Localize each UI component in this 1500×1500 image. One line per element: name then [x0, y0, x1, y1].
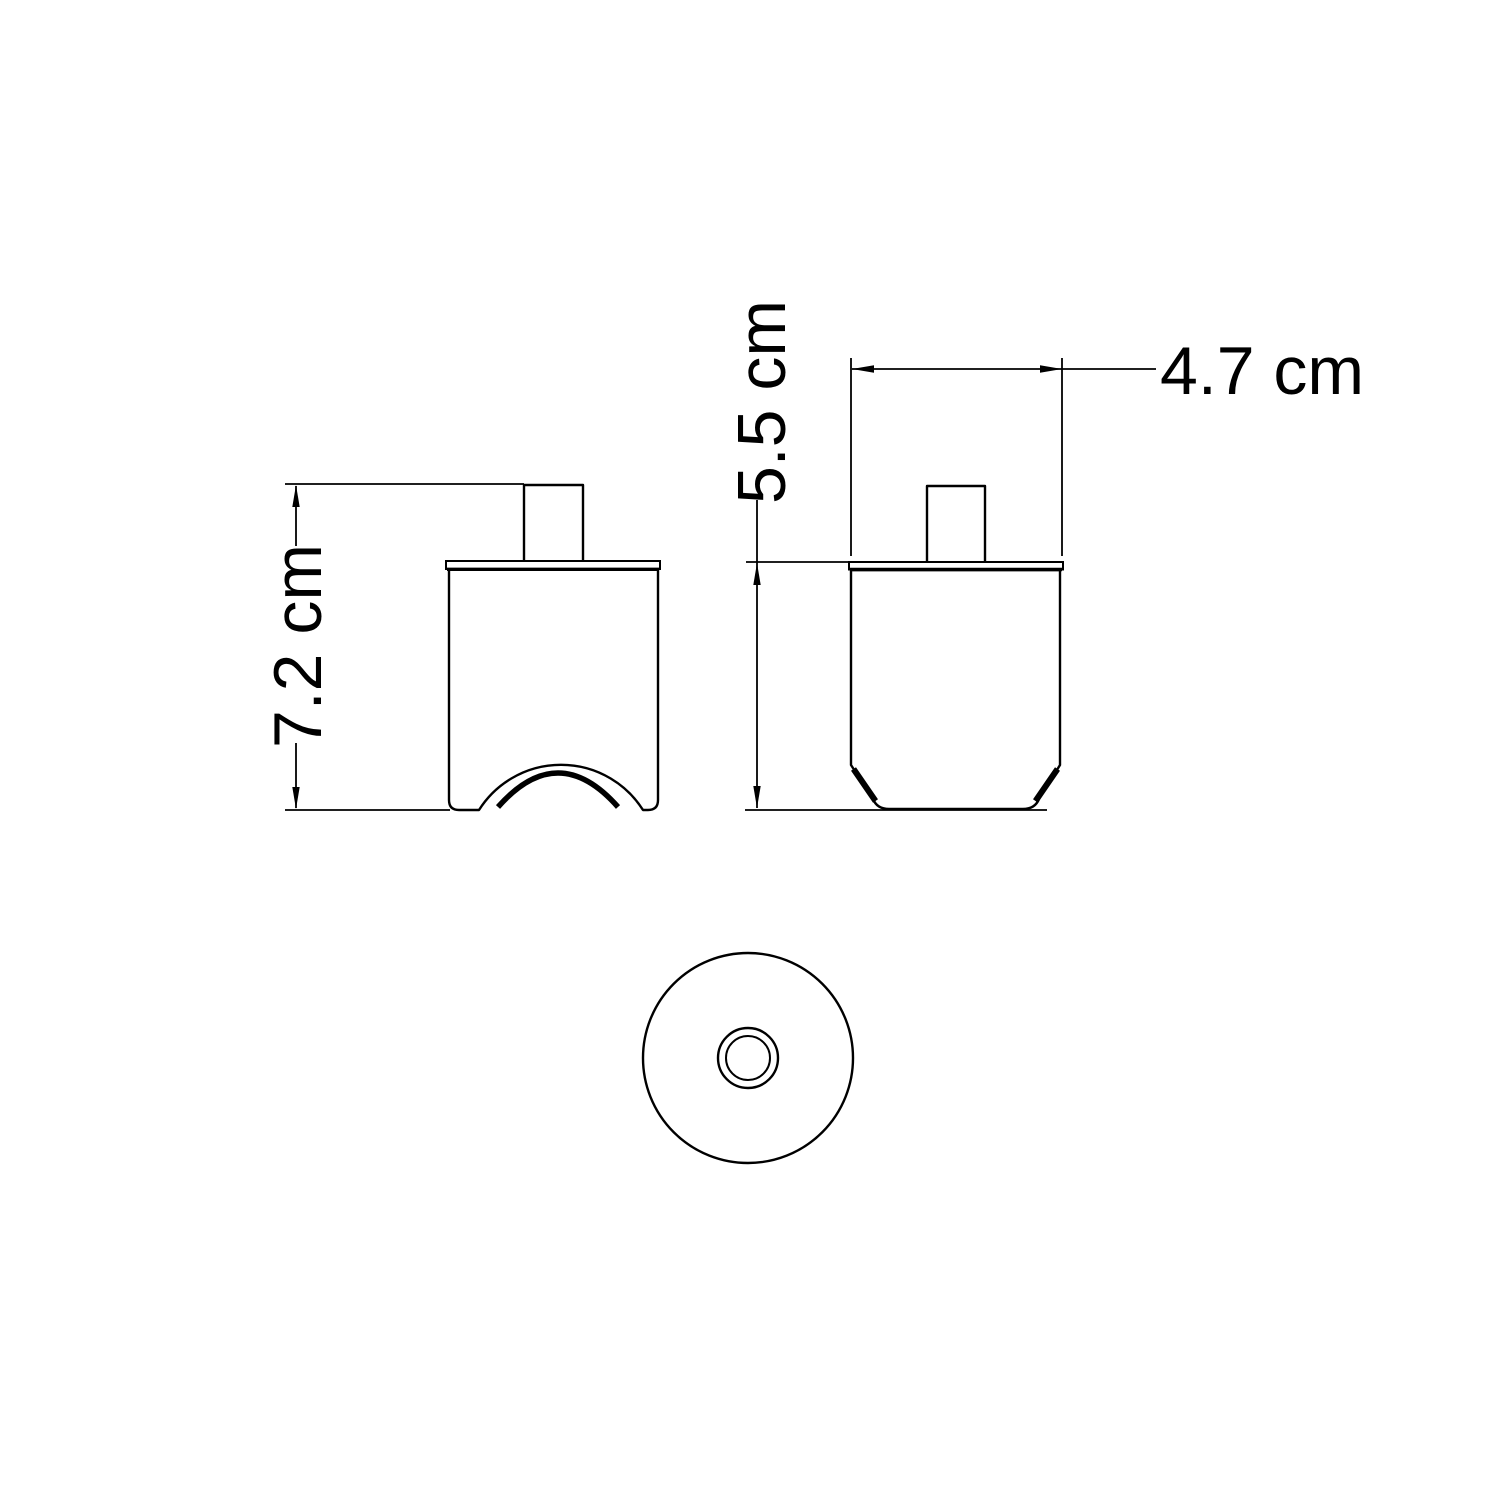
- arrowhead-down: [753, 786, 760, 808]
- front-height-label: 7.2 cm: [260, 544, 336, 748]
- technical-drawing-page: 7.2 cm 5.5 cm 4.7 cm: [0, 0, 1500, 1500]
- side-view-stem: [927, 486, 985, 562]
- arrowhead-up: [292, 485, 299, 507]
- arrowhead-left: [852, 365, 874, 372]
- bottom-view: [643, 953, 853, 1163]
- side-view: [849, 486, 1063, 809]
- side-view-body: [851, 570, 1060, 809]
- technical-drawing-canvas: 7.2 cm 5.5 cm 4.7 cm: [0, 0, 1500, 1500]
- arrowhead-down: [292, 787, 299, 809]
- arrowhead-right: [1040, 365, 1062, 372]
- front-view-stem: [524, 485, 583, 561]
- front-view: [446, 485, 660, 810]
- side-body-height-label: 5.5 cm: [724, 300, 800, 504]
- side-width-label: 4.7 cm: [1160, 333, 1364, 409]
- front-view-arch-accent: [498, 773, 618, 807]
- arrowhead-up: [753, 563, 760, 585]
